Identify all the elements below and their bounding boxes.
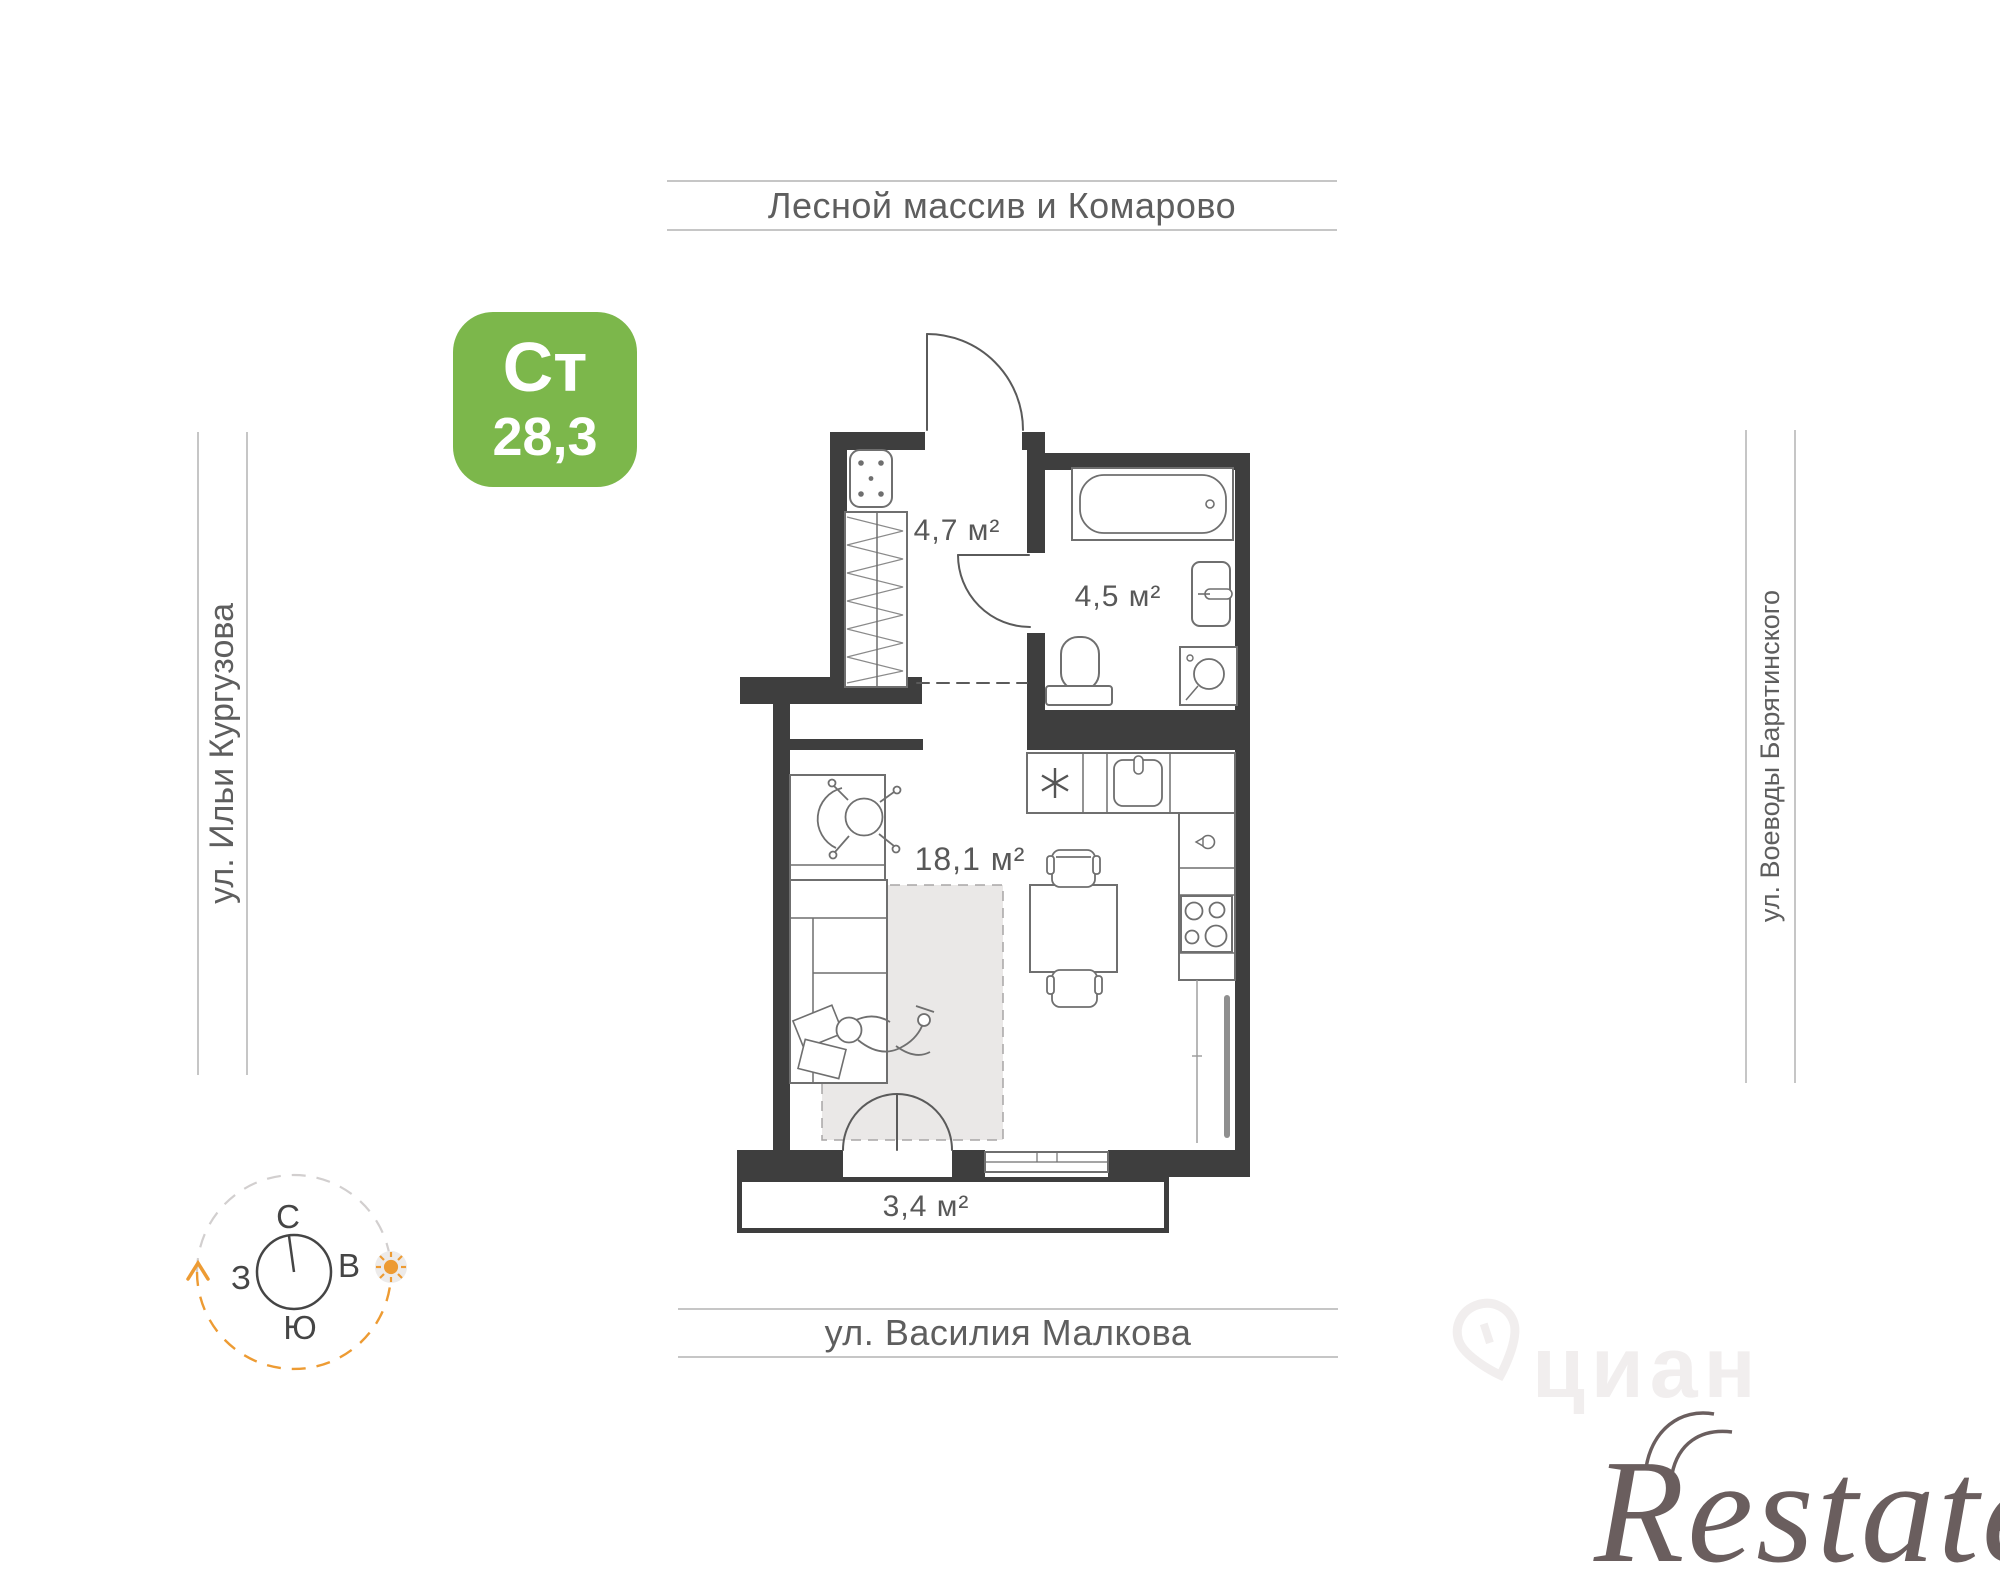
wall [830,432,925,450]
apartment-type-badge: Ст 28,3 [453,312,637,487]
entrance-door-arc [927,334,1023,430]
street-label-right-text: ул. Воеводы Барятинского [1755,590,1786,922]
sun-icon [376,1252,406,1282]
street-label-left-text: ул. Ильи Кургузова [203,603,242,904]
kitchen-sink-faucet [1134,756,1143,774]
compass: С В З Ю [179,1155,411,1387]
cian-watermark: циан [1447,1293,1762,1418]
area-label-living-room: 18,1 м² [915,841,1026,877]
floorplan-page: Лесной массив и Комарово ул. Ильи Кургуз… [0,0,2000,1569]
compass-east-label: В [338,1247,360,1284]
hallway-furniture [845,450,907,687]
area-label-balcony: 3,4 м² [883,1190,970,1223]
wall [1027,633,1045,710]
area-label-bathroom: 4,5 м² [1075,580,1162,613]
area-label-hallway: 4,7 м² [914,514,1001,547]
radiator [1224,995,1230,1138]
street-label-bottom: ул. Василия Малкова [678,1308,1338,1358]
toilet-bowl [1061,637,1099,690]
washing-machine-knob [1187,655,1193,661]
floorplan-drawing: 4,7 м² 4,5 м² 18,1 м² 3,4 м² [700,300,1280,1260]
cian-pin-icon [1447,1293,1532,1388]
wall [773,704,790,1150]
bathroom-door-arc [958,555,1030,627]
street-label-top: Лесной массив и Комарово [667,180,1337,231]
compass-west-label: З [231,1259,251,1296]
compass-south-label: Ю [283,1309,316,1346]
street-label-top-text: Лесной массив и Комарово [768,185,1236,227]
restate-watermark: Restate [1594,1438,2000,1569]
wall [1235,453,1250,1153]
bathtub-inner [1080,475,1226,533]
wall [1027,710,1250,750]
dining-chair-top [1047,850,1100,887]
street-label-left: ул. Ильи Кургузова [197,432,248,1075]
wall [1022,432,1045,450]
wall [773,739,923,750]
dining-table [1030,885,1117,972]
apartment-area-value: 28,3 [492,410,597,464]
wall [737,1150,843,1177]
compass-north-label: С [276,1198,300,1235]
street-label-bottom-text: ул. Василия Малкова [825,1312,1192,1354]
washing-machine-door [1194,659,1224,689]
apartment-type-label: Ст [503,332,588,402]
wall [1108,1150,1250,1177]
toilet-tank [1046,686,1112,705]
street-label-right: ул. Воеводы Барятинского [1745,430,1796,1083]
wall [952,1150,985,1177]
bathtub-drain [1206,500,1214,508]
dining-chair-bottom [1047,970,1102,1007]
